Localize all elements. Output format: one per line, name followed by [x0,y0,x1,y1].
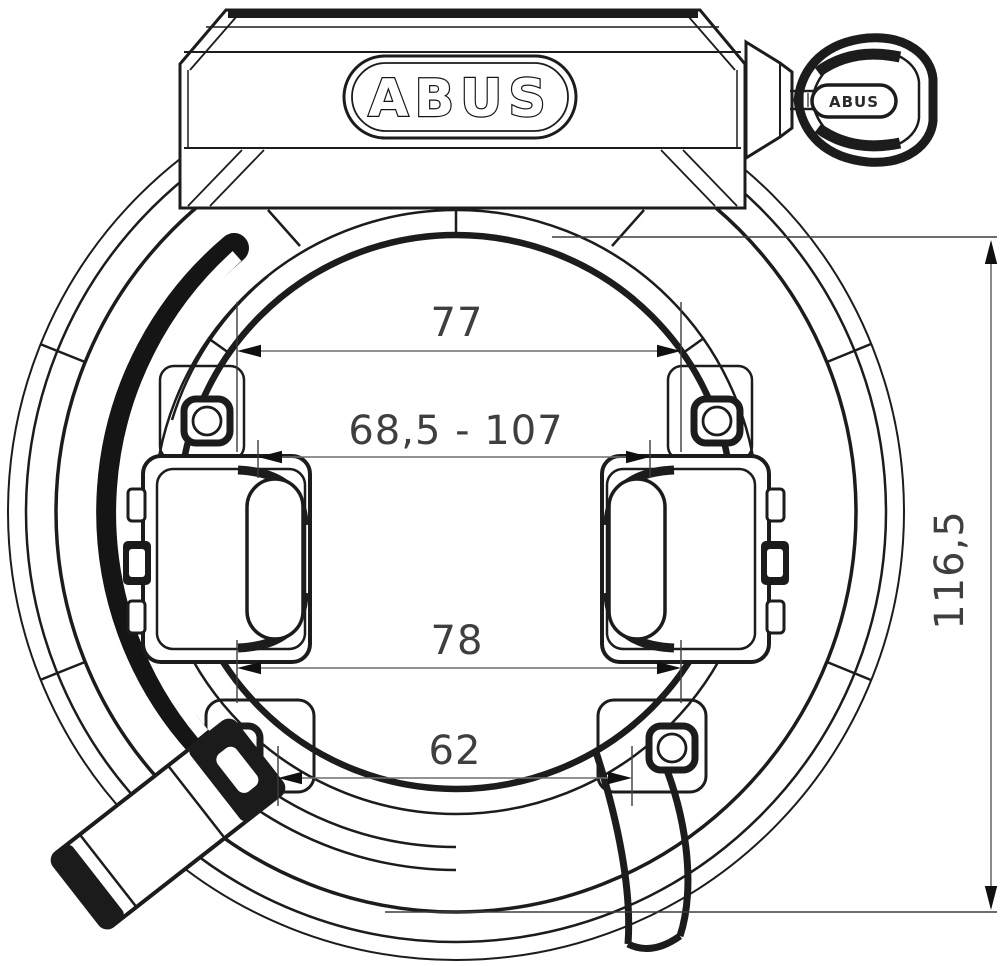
right-bracket-tab-bottom [767,601,784,633]
left-mounting-bracket [123,456,310,662]
dim-text-range: 68,5 - 107 [348,408,563,454]
key-icon: ABUS [746,38,933,163]
mounting-hole-bottom-right [649,726,695,770]
dimension-mounting-range: 68,5 - 107 [258,408,650,478]
dim-text-62: 62 [429,728,482,774]
operating-knob [49,717,287,931]
abus-logo: ABUS [344,56,576,138]
key-head-text: ABUS [829,93,879,111]
brand-plate-text: ABUS [368,69,552,129]
left-bracket-tab-top [128,489,145,521]
dim-text-height: 116,5 [927,510,973,630]
arrowhead-top [985,240,997,264]
key-cylinder [746,42,792,158]
arrowhead-left [237,345,261,357]
right-bracket-tab-top [767,489,784,521]
right-mounting-bracket [602,456,789,662]
right-bracket-slot [609,479,665,639]
frame-lock-technical-drawing: ABUS ABUS [0,0,1000,966]
dim-text-77: 77 [431,300,484,346]
arrowhead-bottom [985,886,997,910]
lock-body: ABUS [180,10,745,208]
dim-text-78: 78 [431,618,484,664]
dimension-bottom-opening-width: 62 [278,728,632,806]
left-bracket-slot [247,479,303,639]
left-bracket-tab-bottom [128,601,145,633]
drawing-canvas: ABUS ABUS [0,0,1000,966]
